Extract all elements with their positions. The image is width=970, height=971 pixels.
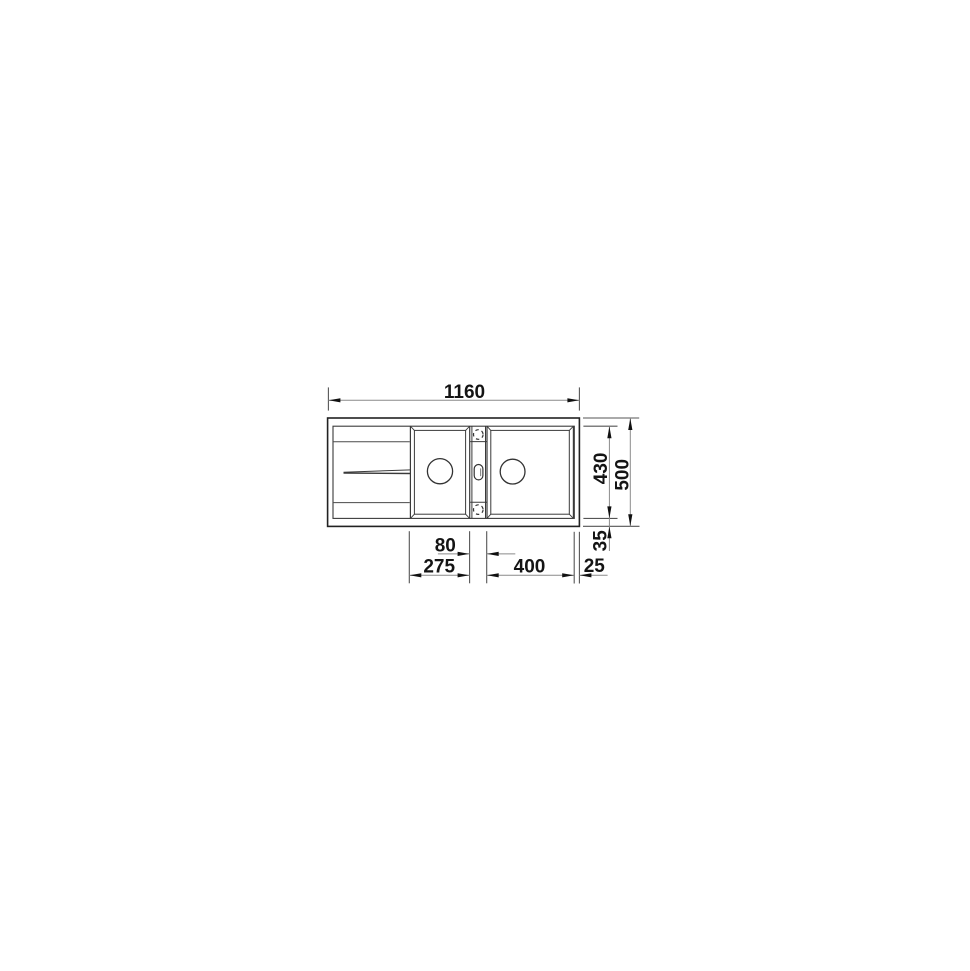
svg-text:500: 500 [613, 459, 634, 491]
svg-text:430: 430 [591, 453, 612, 485]
svg-text:1160: 1160 [444, 382, 485, 403]
svg-text:35: 35 [591, 530, 612, 552]
svg-text:400: 400 [514, 557, 546, 578]
svg-text:80: 80 [435, 535, 456, 556]
svg-text:275: 275 [423, 557, 455, 578]
svg-text:25: 25 [584, 556, 606, 577]
